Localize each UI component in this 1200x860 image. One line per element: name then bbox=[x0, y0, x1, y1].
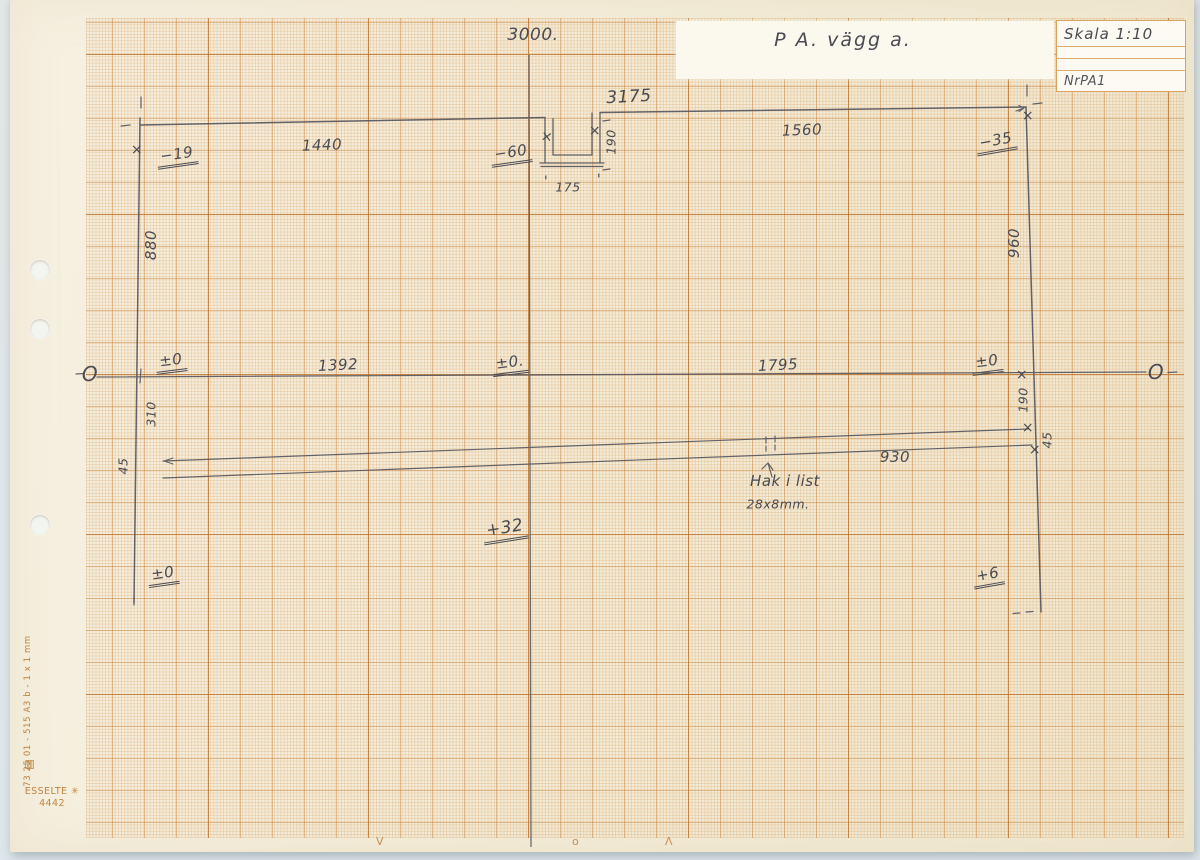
bottom-mark-v: V bbox=[376, 835, 384, 848]
millimeter-grid bbox=[86, 18, 1184, 838]
bottom-mark-o: o bbox=[572, 835, 579, 848]
paper-brand: ESSELTE ✳ 4442 bbox=[16, 786, 88, 810]
punch-hole bbox=[30, 260, 50, 280]
brand-name: ESSELTE ✳ bbox=[16, 786, 88, 798]
title-block-row-empty bbox=[1057, 47, 1185, 59]
title-block-row-empty bbox=[1057, 59, 1185, 71]
bottom-mark-lambda: Λ bbox=[665, 835, 673, 848]
title-block-row-scale: Skala 1:10 bbox=[1057, 21, 1185, 47]
punch-hole bbox=[30, 319, 50, 339]
title-block: Skala 1:10 NrPA1 bbox=[1056, 20, 1186, 92]
brand-number: 4442 bbox=[16, 798, 88, 810]
title-block-row-number: NrPA1 bbox=[1057, 71, 1185, 91]
graph-paper-sheet: Skala 1:10 NrPA1 73 25 01 - 515 A3 b - 1… bbox=[10, 0, 1194, 852]
title-strip bbox=[676, 21, 1054, 79]
punch-hole bbox=[30, 515, 50, 535]
scale-label: Skala 1:10 bbox=[1064, 25, 1153, 43]
sis-logo-icon: ▤ bbox=[23, 759, 36, 769]
sheet-number: NrPA1 bbox=[1064, 74, 1106, 89]
